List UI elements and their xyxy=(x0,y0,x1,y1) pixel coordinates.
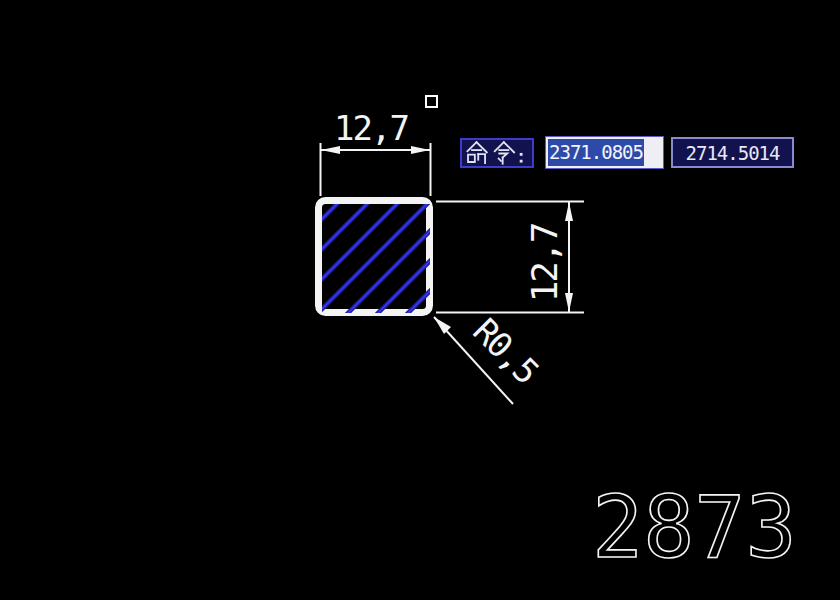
sheet-number-label: 2873 xyxy=(592,478,797,577)
hatched-square[interactable] xyxy=(302,184,537,329)
pickbox-cursor-icon xyxy=(426,96,437,107)
right-dim-label: 12,7 xyxy=(524,224,565,303)
cad-drawing-canvas[interactable]: 12,7 xyxy=(0,0,840,600)
command-prompt-box: 命令: xyxy=(460,138,534,168)
command-label-glyphs xyxy=(465,141,529,166)
coordinate-y-field[interactable]: 2714.5014 xyxy=(671,137,794,168)
right-dim-arrow-top xyxy=(565,202,573,221)
coordinate-x-field[interactable]: 2371.0805 xyxy=(545,136,664,169)
radius-dim-label: R0,5 xyxy=(465,310,546,391)
drawing-layer: 12,7 xyxy=(0,0,840,600)
right-dim-arrow-bottom xyxy=(565,293,573,312)
coordinate-x-selected-text: 2371.0805 xyxy=(548,139,644,166)
coordinate-y-text: 2714.5014 xyxy=(686,142,780,164)
radius-leader: R0,5 xyxy=(434,310,546,404)
top-dim-arrow-right xyxy=(411,146,430,154)
top-dim-label: 12,7 xyxy=(334,108,408,148)
